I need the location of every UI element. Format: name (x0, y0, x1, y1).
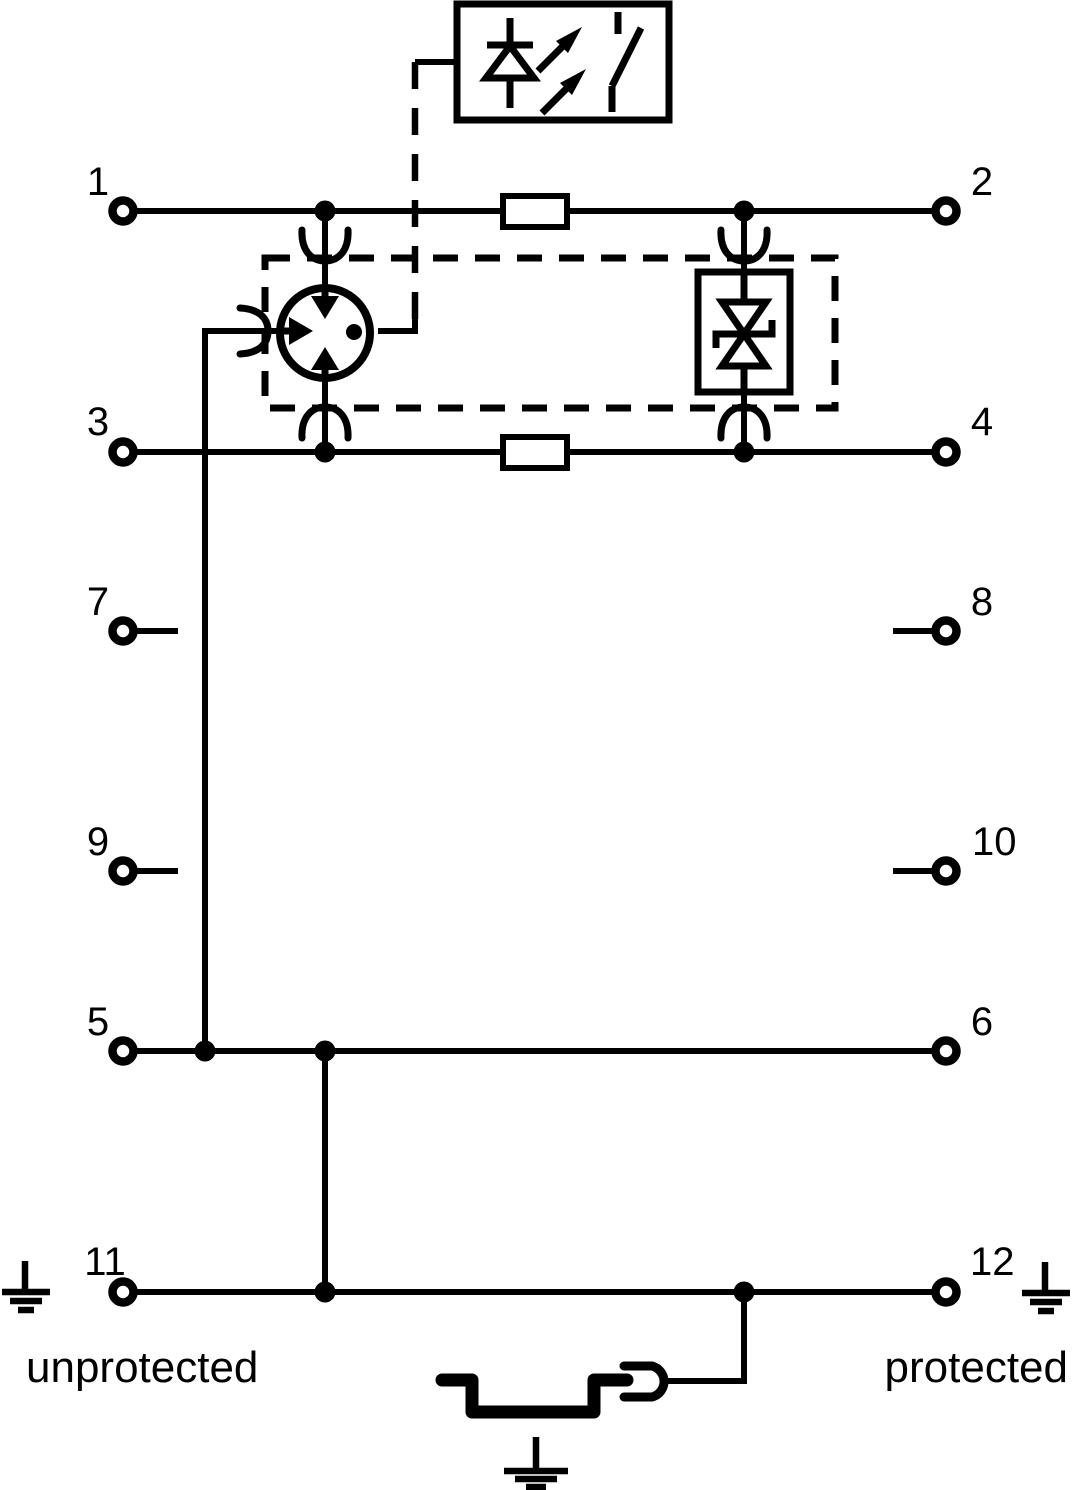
junction-dot (315, 1041, 336, 1062)
monitoring-line (378, 62, 457, 331)
terminal-6 (936, 1041, 957, 1062)
terminal-label-7: 7 (76, 582, 120, 622)
terminal-label-12: 12 (970, 1242, 1014, 1282)
terminal-10 (936, 861, 957, 882)
schematic-page: 1 2 3 4 7 8 9 10 5 6 11 12 unprotected p… (0, 0, 1084, 1490)
vertical-line-12-to-ground (668, 1292, 744, 1381)
junction-dot (315, 442, 336, 463)
series-resistor-bottom (503, 437, 567, 468)
zone-label-protected: protected (885, 1346, 1068, 1390)
terminal-label-2: 2 (958, 162, 1006, 202)
junction-dot (734, 442, 755, 463)
terminal-label-8: 8 (958, 582, 1006, 622)
terminal-8 (936, 621, 957, 642)
terminal-label-5: 5 (76, 1002, 120, 1042)
terminal-11 (113, 1282, 134, 1303)
tvs-diode-icon (698, 272, 790, 392)
series-resistor-top (503, 196, 567, 227)
terminal-5 (113, 1041, 134, 1062)
zone-label-unprotected: unprotected (26, 1346, 258, 1390)
terminal-label-6: 6 (958, 1002, 1006, 1042)
terminal-label-9: 9 (76, 822, 120, 862)
terminal-4 (936, 442, 957, 463)
terminal-1 (113, 201, 134, 222)
terminal-2 (936, 201, 957, 222)
terminal-7 (113, 621, 134, 642)
junction-dot (195, 1041, 216, 1062)
junction-dot (315, 1282, 336, 1303)
terminal-label-11: 11 (83, 1242, 127, 1282)
junction-dot (734, 201, 755, 222)
terminal-12 (936, 1282, 957, 1303)
earth-symbol-bottom (504, 1437, 568, 1487)
terminal-9 (113, 861, 134, 882)
terminal-label-10: 10 (972, 822, 1016, 862)
vertical-line-gdt-to-5 (205, 331, 284, 1051)
junction-dot (734, 1282, 755, 1303)
terminal-label-4: 4 (958, 402, 1006, 442)
junction-dot (315, 201, 336, 222)
circuit-diagram (0, 0, 1084, 1490)
terminal-label-3: 3 (76, 402, 120, 442)
gas-discharge-tube-icon (280, 286, 370, 380)
status-indicator-box (457, 4, 669, 120)
terminal-3 (113, 442, 134, 463)
terminal-label-1: 1 (76, 162, 120, 202)
ground-rail-trace (442, 1366, 744, 1412)
earth-symbol-right (1022, 1262, 1070, 1311)
earth-symbol-left (2, 1261, 50, 1310)
